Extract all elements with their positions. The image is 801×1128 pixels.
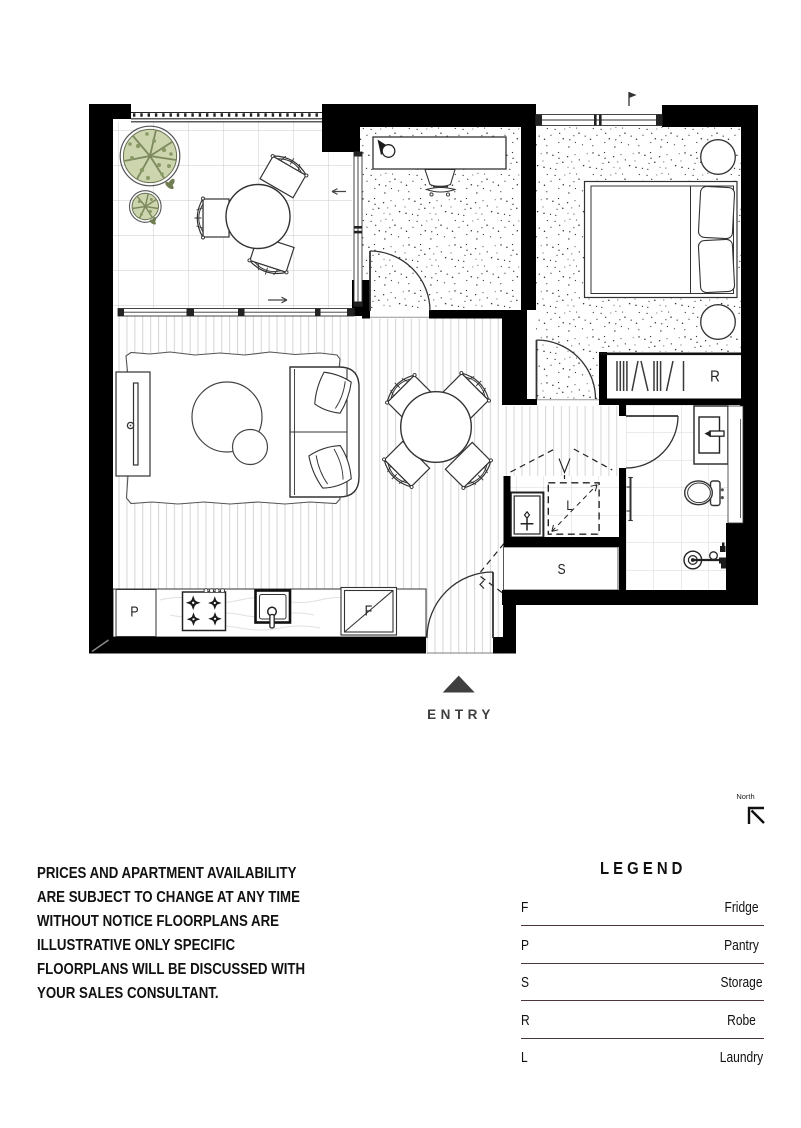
svg-text:F: F	[365, 601, 373, 618]
svg-text:L: L	[566, 498, 572, 513]
svg-text:S: S	[557, 561, 565, 577]
svg-text:North: North	[736, 792, 754, 801]
svg-text:R: R	[710, 369, 720, 386]
svg-text:P: P	[130, 602, 138, 619]
svg-text:ENTRY: ENTRY	[427, 707, 495, 722]
